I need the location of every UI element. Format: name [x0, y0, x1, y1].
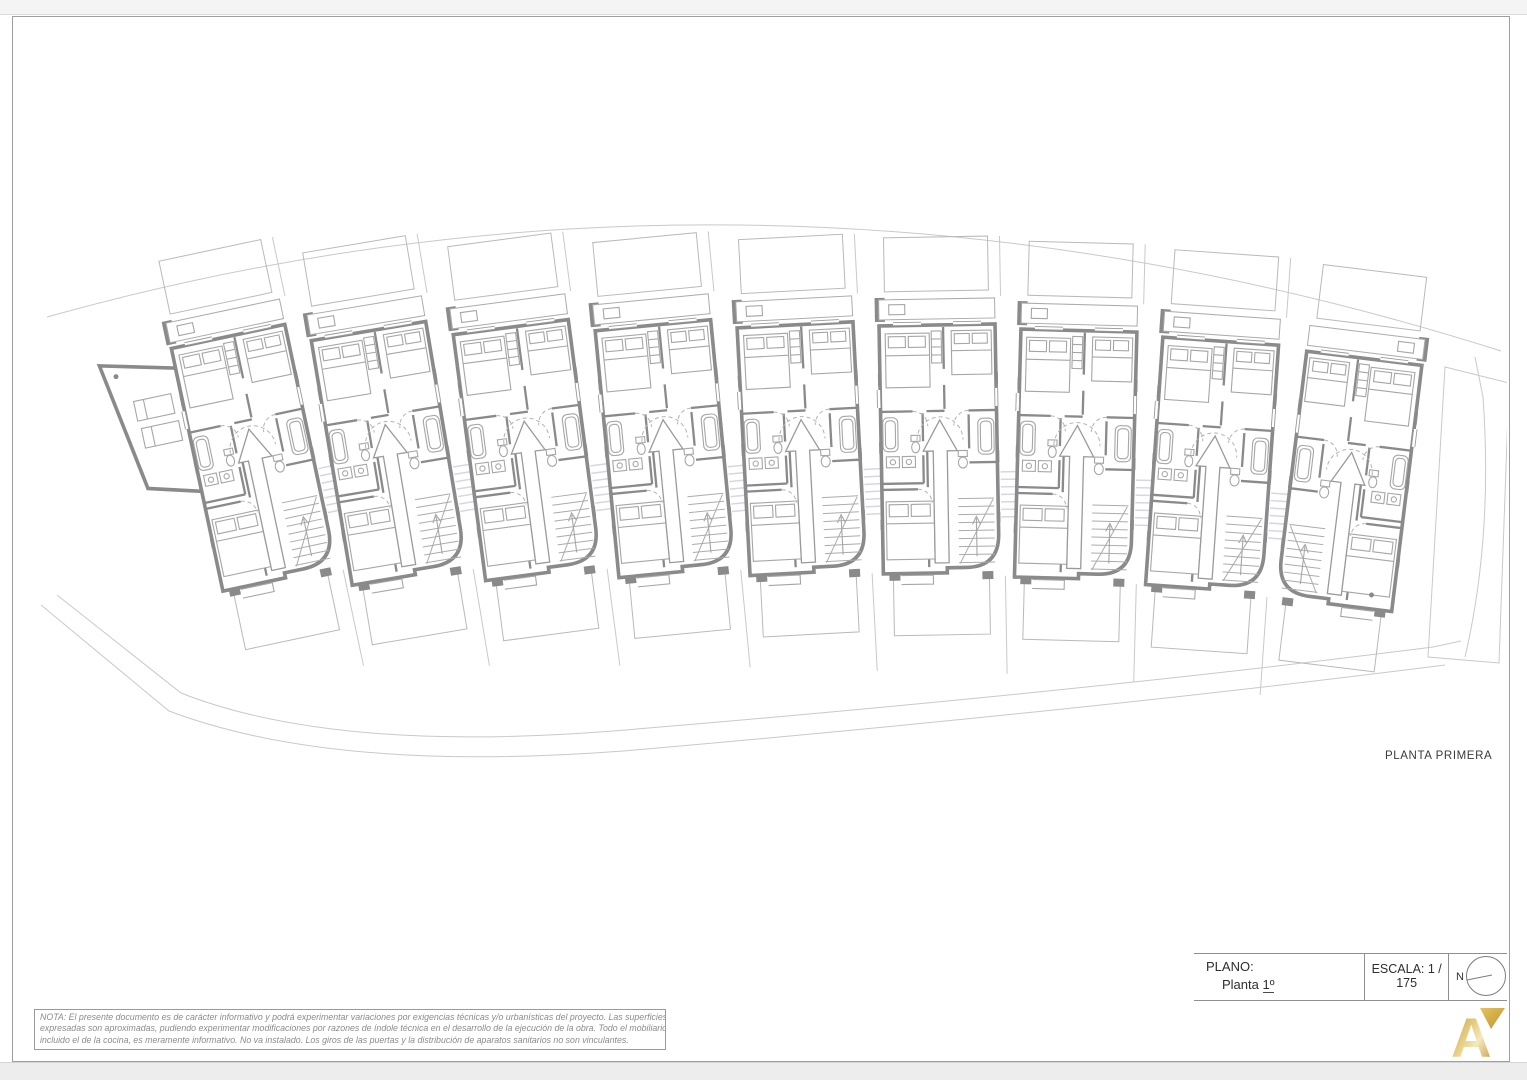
note-line-1: NOTA: El presente documento es de caráct… [40, 1012, 660, 1023]
north-label: N [1456, 971, 1464, 983]
plano-value-ordinal: 1º [1263, 977, 1275, 993]
site-boundary-bottom-outer [41, 605, 1445, 757]
site-boundary-right [1465, 357, 1486, 657]
title-block-escala-cell: ESCALA: 1 / 175 [1364, 954, 1448, 1000]
page-margin-bottom [0, 1062, 1527, 1080]
company-logo-icon: A [1451, 1003, 1507, 1063]
title-block-plano-cell: PLANO: Planta 1º [1194, 954, 1364, 1000]
note-box: NOTA: El presente documento es de caráct… [34, 1009, 666, 1050]
plano-value: Planta [1222, 977, 1259, 992]
plan-title-label: PLANTA PRIMERA [1385, 750, 1492, 762]
end-garden-boundary [1428, 367, 1507, 663]
drawing-sheet-page: PLANTA PRIMERA PLANO: Planta 1º ESCALA: … [0, 0, 1527, 1080]
note-line-2: expresadas son aproximadas, pudiendo exp… [40, 1023, 660, 1034]
paper-sheet: PLANTA PRIMERA PLANO: Planta 1º ESCALA: … [12, 16, 1510, 1062]
floorplan-unit-9 [1267, 264, 1437, 674]
title-block: PLANO: Planta 1º ESCALA: 1 / 175 N [1194, 953, 1507, 1001]
floor-plan-drawing [13, 17, 1507, 1059]
title-block-north-cell: N [1448, 954, 1507, 1000]
page-margin-top [0, 0, 1527, 15]
plano-label: PLANO: [1206, 959, 1364, 974]
site-boundary-bottom-inner [57, 595, 1461, 737]
note-line-3: incluido el de la cocina, es meramente i… [40, 1035, 660, 1046]
